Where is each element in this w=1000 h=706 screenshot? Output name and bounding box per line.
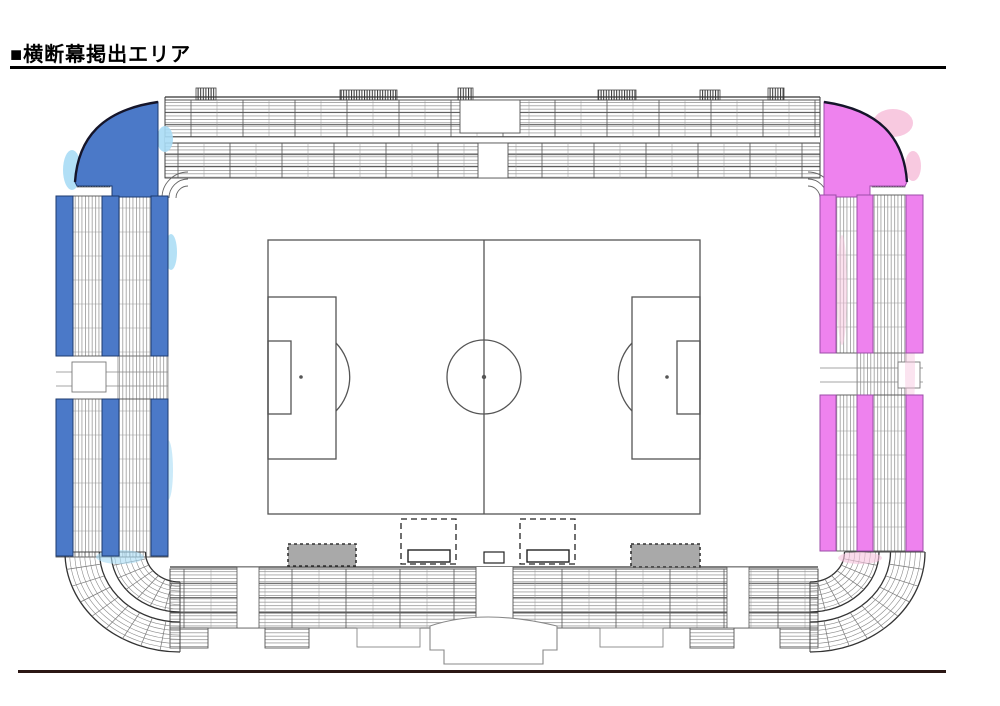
corner-spoke (141, 618, 153, 646)
pink-halo (838, 552, 882, 564)
soccer-field (268, 240, 700, 514)
corner-spoke (72, 576, 104, 586)
blue-halo (157, 126, 173, 152)
corner-spoke (150, 579, 165, 606)
corner-spoke (889, 564, 923, 569)
fourth-official-box (484, 552, 504, 563)
penalty-arc-right (618, 343, 632, 411)
roof-structure (700, 90, 720, 100)
banner-bar-pink (906, 395, 923, 551)
southwest-corner-stand (65, 552, 180, 652)
corner-spoke (123, 613, 140, 639)
goal-area-left (268, 341, 291, 414)
roof-structure (458, 88, 473, 100)
bench-area (288, 519, 700, 567)
bottom-rule (18, 670, 946, 673)
corner-spoke (850, 613, 867, 639)
banner-bar-blue (151, 196, 168, 356)
entrance (72, 362, 106, 392)
inner-arc (176, 186, 188, 198)
corner-spoke (80, 587, 110, 602)
north-stand (165, 88, 820, 178)
banner-bar-pink (820, 395, 836, 551)
center-spot (482, 375, 486, 379)
corner-spoke (886, 576, 918, 586)
clubhouse (430, 617, 557, 664)
roof-structure (196, 88, 216, 100)
penalty-spot-right (665, 375, 669, 379)
corner-spoke (818, 581, 826, 610)
pink-halo (837, 235, 847, 345)
press-box (460, 100, 520, 133)
corner-spoke (880, 587, 910, 602)
corner-spoke (118, 565, 149, 578)
gray-dashed-box-right (631, 544, 700, 567)
roof-structure (768, 88, 784, 100)
banner-bar-pink (857, 195, 873, 353)
lower-structure (780, 628, 818, 648)
banner-bar-blue (151, 399, 168, 556)
lower-structure-plain (357, 628, 420, 647)
lower-structure-plain (600, 628, 663, 647)
southeast-corner-stand (810, 552, 925, 652)
inner-arc (169, 179, 188, 198)
northwest-banner-wedge (75, 102, 158, 197)
corner-spoke (160, 621, 166, 651)
central-aisle (478, 143, 508, 178)
inner-arc (808, 186, 820, 198)
bench-left (408, 550, 450, 562)
roof-structure (340, 90, 397, 100)
lower-structure (170, 628, 208, 648)
lower-structure (265, 628, 309, 648)
page: ■横断幕掲出エリア (0, 0, 1000, 706)
corner-spoke (841, 565, 872, 578)
walkway (165, 137, 820, 143)
corner-spoke (824, 621, 830, 651)
bench-right (527, 550, 569, 562)
banner-bar-blue (56, 399, 73, 556)
banner-bar-blue (102, 399, 119, 556)
entrance-aisle (727, 567, 749, 628)
banner-bar-blue (102, 196, 119, 356)
goal-area-right (677, 341, 700, 414)
corner-arc (90, 552, 180, 631)
banner-bar-blue (56, 196, 73, 356)
south-stand (170, 567, 818, 664)
stadium-diagram (0, 0, 1000, 706)
corner-spoke (67, 564, 101, 569)
roof-structure (598, 90, 636, 100)
gray-dashed-box-left (288, 544, 356, 566)
penalty-spot-left (299, 375, 303, 379)
penalty-arc-left (336, 343, 350, 411)
corner-spoke (838, 618, 850, 646)
mid-seats (118, 356, 168, 399)
corner-spoke (825, 579, 840, 606)
banner-wedge-blue (75, 102, 158, 197)
banner-bar-pink (820, 195, 836, 353)
banner-bar-pink (857, 395, 873, 551)
banner-bar-pink (906, 195, 923, 353)
entrance-aisle (237, 567, 259, 628)
lower-structure (690, 628, 734, 648)
